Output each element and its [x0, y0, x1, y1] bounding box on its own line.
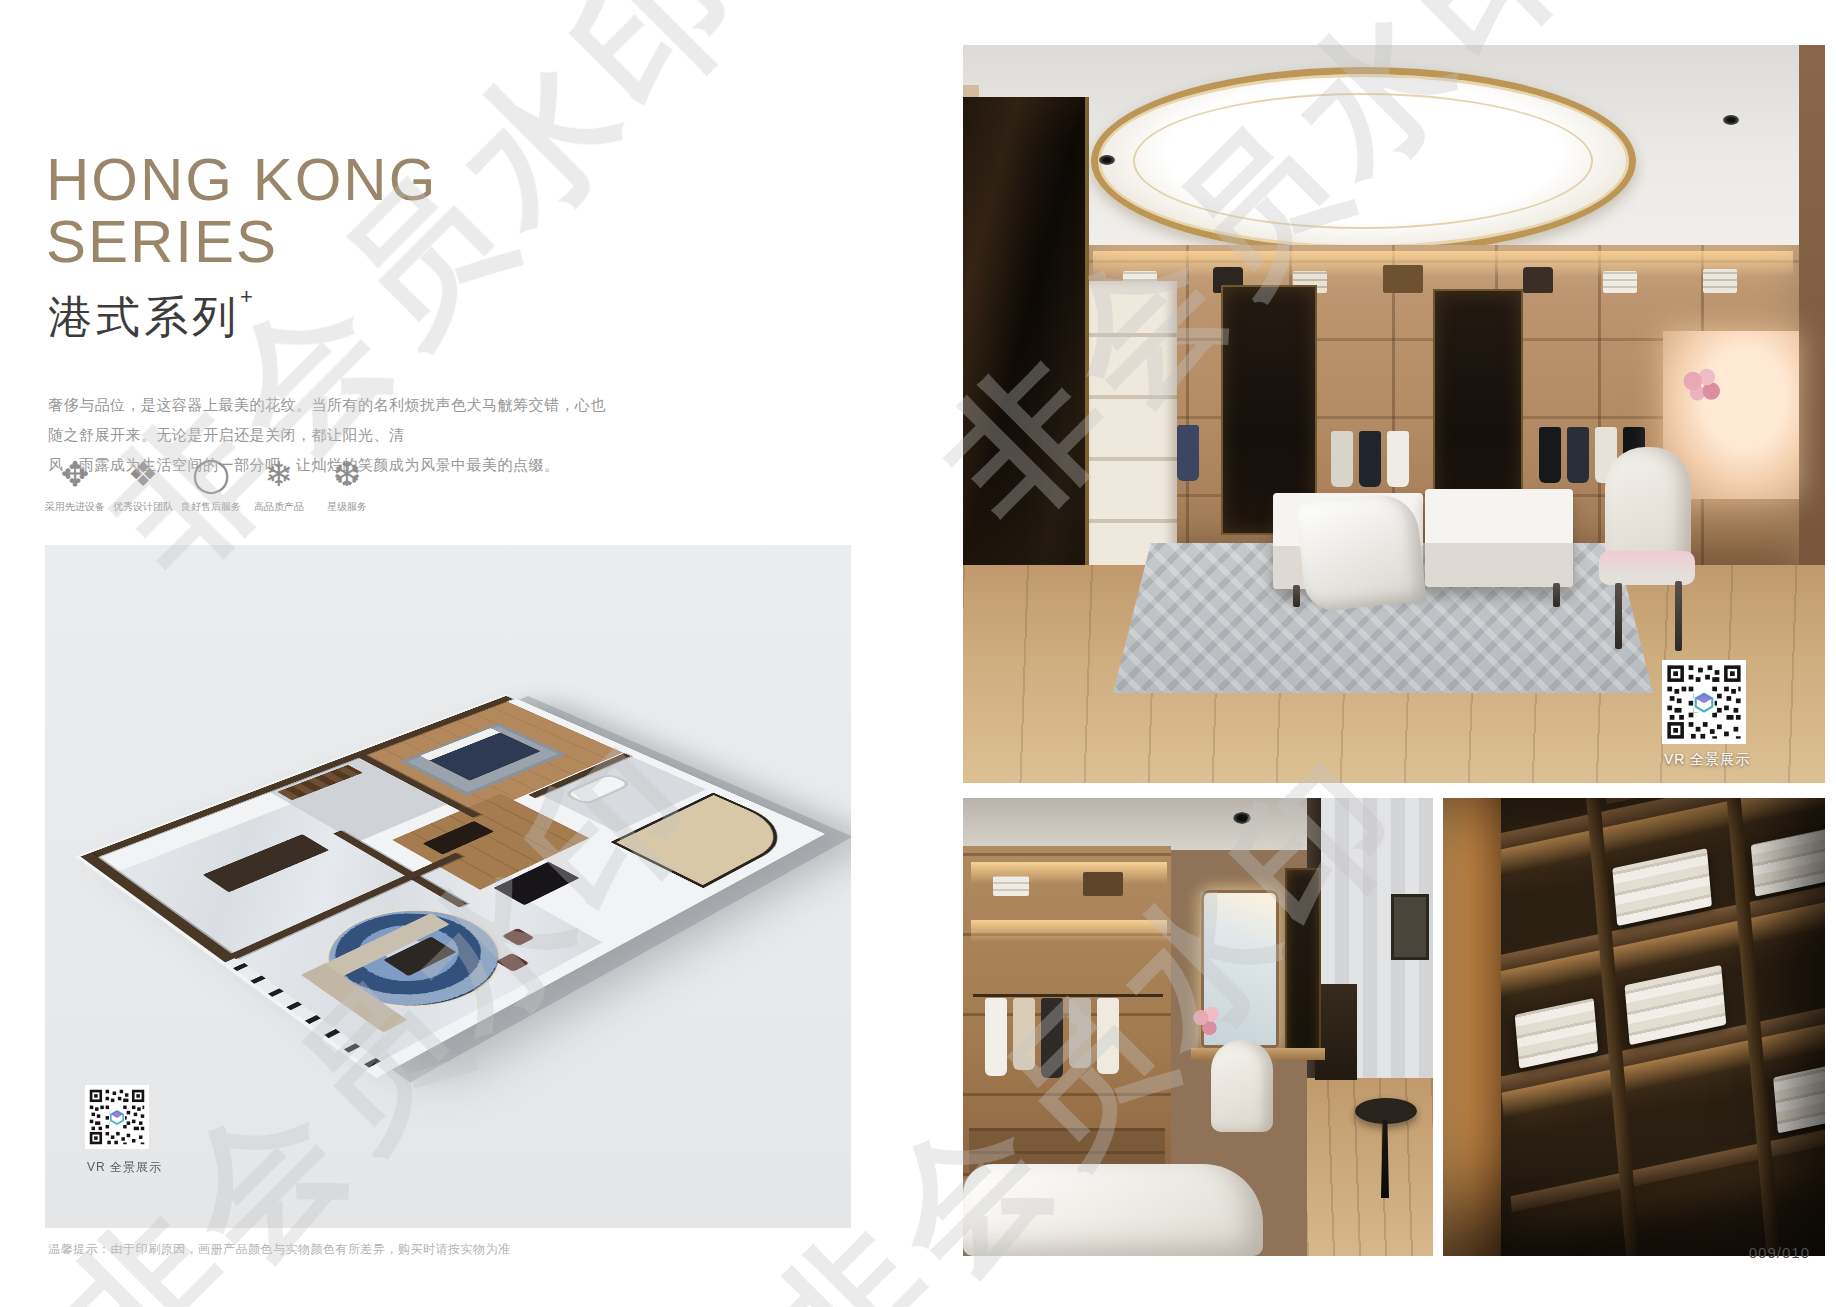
garment	[1013, 998, 1035, 1070]
photo-cloakroom-main: VR 全景展示	[963, 45, 1825, 783]
garment	[1567, 427, 1589, 483]
spotlight	[1723, 115, 1739, 125]
feature-label: 高品质产品	[248, 500, 310, 514]
flower-bouquet	[1679, 365, 1725, 405]
chair-leg	[1615, 583, 1622, 649]
feature-label: 采用先进设备	[44, 500, 106, 514]
vanity-chair	[1211, 1040, 1273, 1132]
snowflake-icon: ❄	[248, 452, 310, 496]
feature-service: ❆ 星级服务	[316, 452, 378, 514]
feature-badges: ✥ 采用先进设备 ❖ 优秀设计团队 ◯ 良好售后服务 ❄ 高品质产品 ❆ 星级服…	[44, 452, 378, 514]
garment	[1177, 425, 1199, 481]
hanging-clothes	[1331, 431, 1409, 487]
handbag	[1523, 267, 1553, 293]
spotlight	[1099, 155, 1115, 165]
description-line: 奢侈与品位，是这容器上最美的花纹。当所有的名利烦扰声色犬马觥筹交错，心也随之舒展…	[48, 390, 608, 450]
vr-label: VR 全景展示	[87, 1159, 162, 1176]
garment	[1097, 998, 1119, 1074]
feature-label: 良好售后服务	[180, 500, 242, 514]
garment	[985, 998, 1007, 1076]
photo-vignette	[1443, 798, 1825, 1256]
ornament-cross-icon: ✥	[44, 452, 106, 496]
garment	[1387, 431, 1409, 487]
feature-after-sales: ◯ 良好售后服务	[180, 452, 242, 514]
folded-clothes	[1703, 269, 1737, 293]
folded-clothes	[993, 876, 1029, 896]
garment	[1069, 998, 1091, 1068]
garment	[1041, 998, 1063, 1078]
page-title-line1: HONG KONG	[46, 150, 437, 210]
shelf-lighting	[1093, 251, 1793, 277]
storage-box	[1383, 265, 1423, 293]
dark-sideboard	[1315, 984, 1357, 1080]
photo-shelf-closeup	[1443, 798, 1825, 1256]
feature-design-team: ❖ 优秀设计团队	[112, 452, 174, 514]
open-shelf-column	[1089, 281, 1177, 581]
subtitle-plus-mark: +	[240, 284, 257, 309]
vr-label: VR 全景展示	[1664, 751, 1750, 769]
floorplan-render	[85, 555, 825, 1155]
page-subtitle: 港式系列+	[48, 284, 257, 347]
feature-label: 星级服务	[316, 500, 378, 514]
folded-clothes	[1603, 271, 1637, 293]
bench-leg	[1293, 585, 1300, 607]
bed-ottoman	[1425, 489, 1573, 587]
storage-box	[1083, 872, 1123, 896]
white-throw-blanket	[1296, 491, 1427, 613]
feature-quality: ❄ 高品质产品	[248, 452, 310, 514]
print-disclaimer: 温馨提示：由于印刷原因，画册产品颜色与实物颜色有所差异，购买时请按实物为准	[48, 1241, 511, 1258]
closet-rod	[973, 994, 1163, 997]
garment	[1539, 427, 1561, 483]
glass-display-cabinet	[1285, 868, 1321, 1058]
flower-bouquet	[1189, 1004, 1223, 1038]
wall-art-frame	[1391, 894, 1429, 960]
page-title-line2: SERIES	[46, 212, 278, 272]
hanging-clothes	[985, 998, 1119, 1078]
ornament-diamond-icon: ❖	[112, 452, 174, 496]
qr-code	[1662, 660, 1746, 744]
photo-dresser-corner	[963, 798, 1433, 1256]
floorplan-figure: VR 全景展示	[45, 545, 851, 1228]
bed-with-white-drape	[963, 1164, 1263, 1256]
chair-leg	[1675, 581, 1682, 651]
snowflake-dot-icon: ❆	[316, 452, 378, 496]
gold-ceiling-ring-inner	[1133, 93, 1593, 229]
page-number: 009/010	[1700, 1244, 1810, 1261]
spotlight	[1233, 812, 1251, 824]
garment	[1331, 431, 1353, 487]
subtitle-text: 港式系列	[48, 292, 240, 341]
bench-leg	[1553, 583, 1560, 607]
feature-equipment: ✥ 采用先进设备	[44, 452, 106, 514]
vanity-chair-seat	[1599, 551, 1695, 585]
vanity-chair	[1605, 447, 1691, 567]
qr-code	[85, 1085, 149, 1149]
ring-icon: ◯	[180, 452, 242, 496]
feature-label: 优秀设计团队	[112, 500, 174, 514]
shelf-lighting	[971, 920, 1167, 942]
garment	[1359, 431, 1381, 487]
